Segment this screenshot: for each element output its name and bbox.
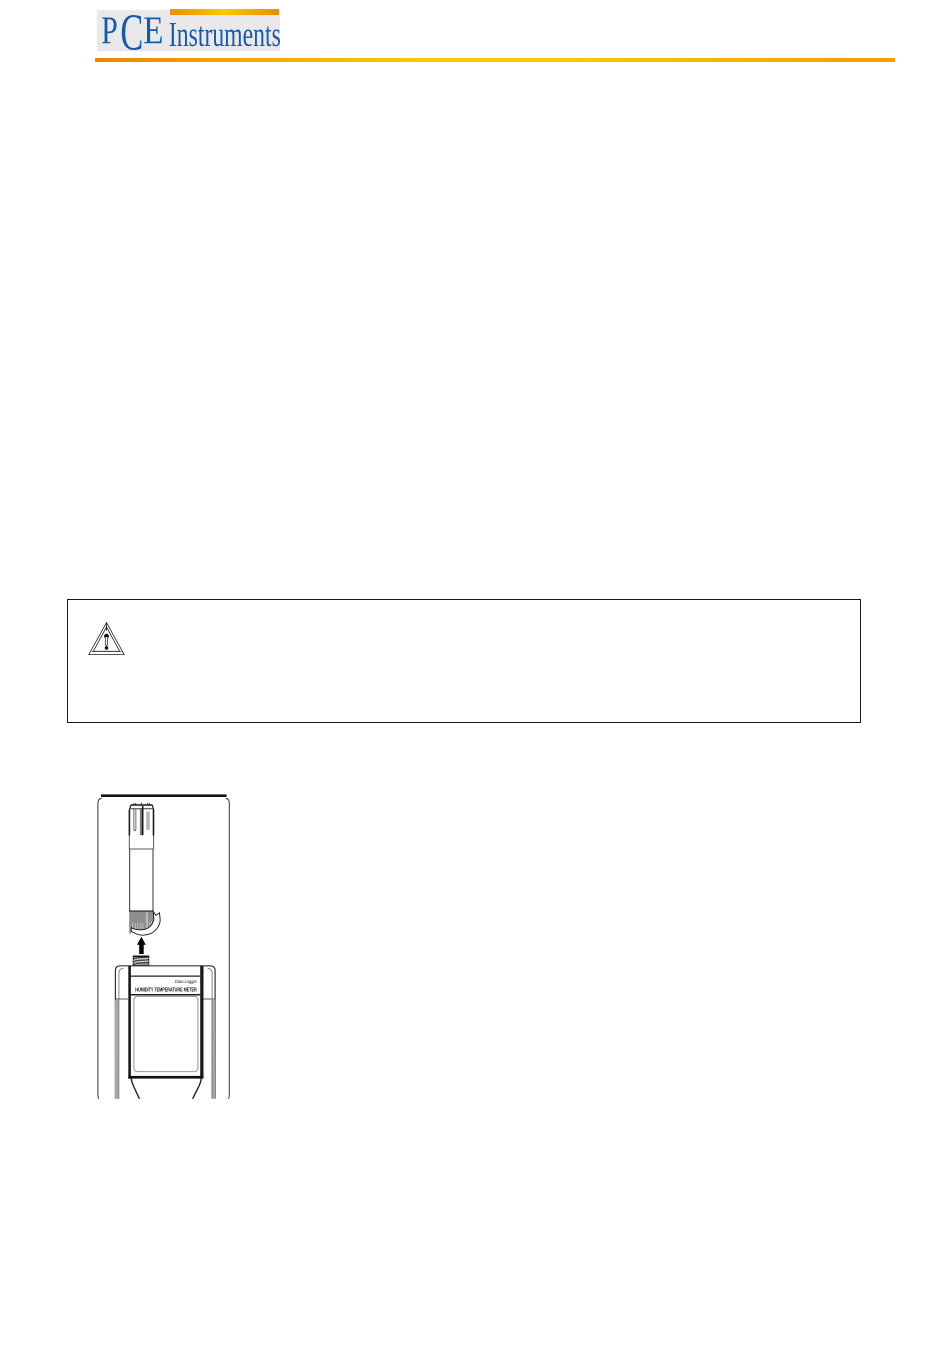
svg-text:P: P <box>101 8 117 52</box>
svg-text:HUMIDITY TEMPERATURE METER: HUMIDITY TEMPERATURE METER <box>135 987 197 993</box>
svg-text:C: C <box>120 4 143 60</box>
svg-text:E: E <box>143 8 163 51</box>
svg-text:Data Logger: Data Logger <box>175 979 197 984</box>
svg-text:Instruments: Instruments <box>169 16 281 54</box>
